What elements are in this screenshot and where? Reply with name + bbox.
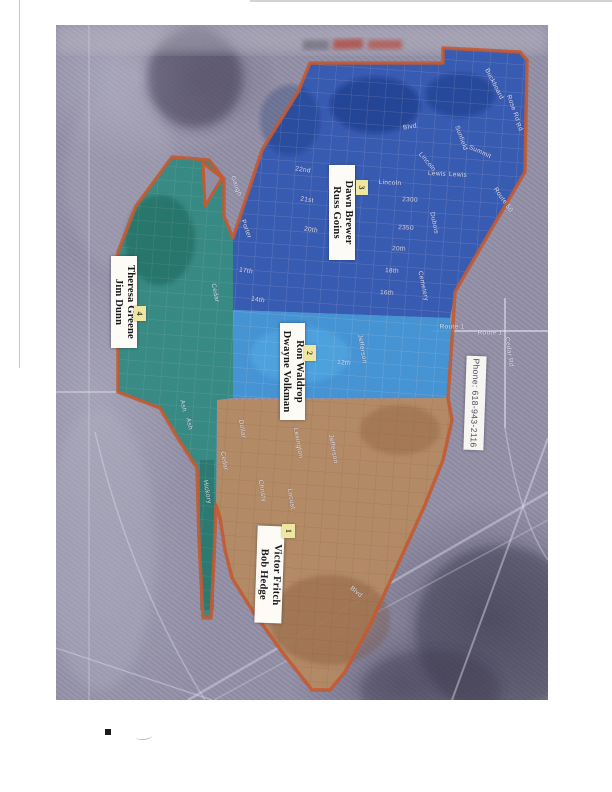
street-label: Route 1 <box>440 324 465 331</box>
street-label: Lincoln <box>378 179 401 187</box>
street-label: 18th <box>385 267 399 275</box>
zone-4-number-tab: 4 <box>134 306 146 321</box>
street-label: 12th <box>337 359 351 367</box>
street-label: 16th <box>380 289 394 297</box>
zone-3-number-tab: 3 <box>356 180 368 195</box>
scan-hairline <box>19 0 20 368</box>
zone-2-number-tab: 2 <box>304 345 316 361</box>
zone-1-number: 1 <box>284 524 293 538</box>
street-label: 20th <box>392 245 406 253</box>
zone-2-number: 2 <box>306 345 315 361</box>
zone-2-name-1: Ron Waldrop <box>293 323 306 420</box>
street-label: Lewis <box>428 170 446 178</box>
street-label: Lewis <box>449 171 467 179</box>
phone-label-box: Phone: 618-943-2116 <box>463 356 486 451</box>
street-label: 2300 <box>402 196 418 204</box>
zone-3-label-box: Dawn Brewer Russ Goins <box>329 165 355 260</box>
phone-number: Phone: 618-943-2116 <box>468 356 481 450</box>
zone-3-name-1: Dawn Brewer <box>342 165 355 260</box>
zone-4-label-box: Theresa Greene Jim Dunn <box>111 256 137 348</box>
zone-4-name-1: Theresa Greene <box>124 256 137 348</box>
zone-3-number: 3 <box>358 180 367 195</box>
zone-1-label-box: Victor Fritch Bob Hedge <box>254 526 284 624</box>
zone-2-name-2: Dwayne Volkman <box>280 323 293 420</box>
scan-streak <box>250 0 612 2</box>
zone-2-label-box: Ron Waldrop Dwayne Volkman <box>280 323 305 420</box>
zone-1-number-tab: 1 <box>282 524 295 538</box>
ink-dot-mark <box>105 729 111 735</box>
zone-4-number: 4 <box>136 306 145 321</box>
street-label: 2350 <box>398 224 414 232</box>
illegible-red-title-smudge <box>303 38 402 50</box>
scanned-page: Gaugh22nd21st20thPorter17thCedar14thBlvd… <box>0 0 612 792</box>
zone-4-name-2: Jim Dunn <box>112 256 125 348</box>
street-label: Route 1 <box>478 330 503 337</box>
zone-3-name-2: Russ Goins <box>330 165 343 260</box>
